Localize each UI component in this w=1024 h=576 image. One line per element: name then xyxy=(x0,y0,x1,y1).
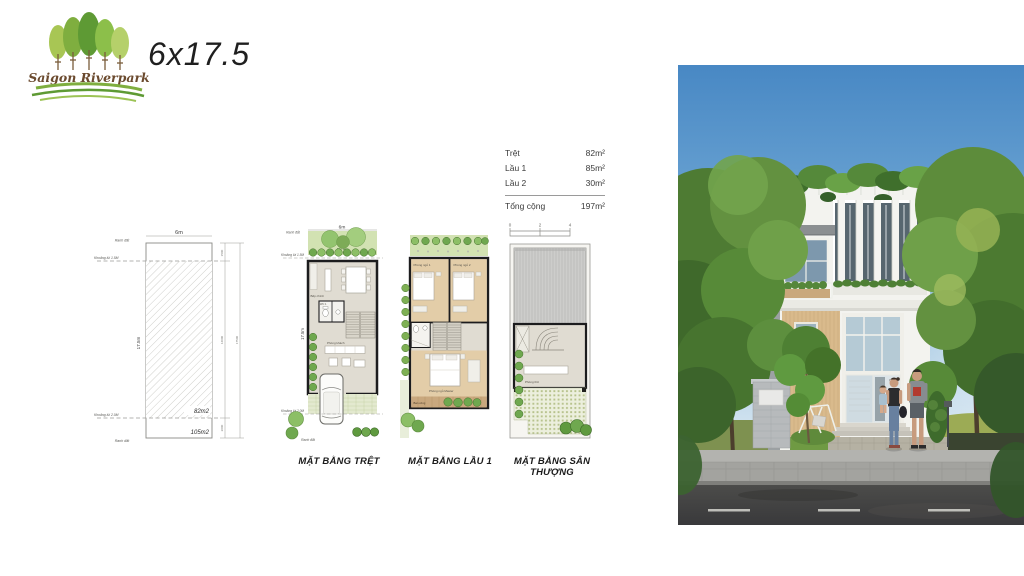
brand-logo: Saigon Riverpark xyxy=(28,10,150,102)
site-width-label: 6m xyxy=(175,230,183,236)
exterior-rendering xyxy=(678,65,1024,525)
site-plan-diagram: 6m 17.5m Ranh đất Khoảng lùi 1.5M Khoảng… xyxy=(92,228,257,453)
rp-roof xyxy=(514,248,586,324)
road xyxy=(678,485,1024,525)
ground-floor-plan: 6m Ranh đất Sân sau Khoảng lùi 1.5M xyxy=(280,222,398,452)
total-label: Tổng cộng xyxy=(505,199,545,214)
gp-width-label: 6m xyxy=(339,225,346,231)
gp-boundary-top: Ranh đất xyxy=(286,231,301,235)
row-value: 82m² xyxy=(586,146,605,161)
roof-terrace-plan: Phòng thờ xyxy=(502,238,598,450)
roof-plan-title: MẶT BẰNG SÂN THƯỢNG xyxy=(494,456,610,478)
ff-roof-garden xyxy=(410,235,489,256)
gp-stairs xyxy=(346,312,375,338)
ff-master-bedroom: Phòng ngủ Master xyxy=(411,351,487,397)
ff-bedroom1-label: Phòng ngủ 1 xyxy=(414,263,431,267)
gp-wc: WC 1 xyxy=(319,301,344,322)
dim-total: 17500 xyxy=(235,335,239,344)
gp-living-label: Phòng khách xyxy=(327,341,345,345)
gate-pillar xyxy=(751,379,792,448)
gp-depth-label: 17.5m xyxy=(300,328,305,340)
dim-top: 1500 xyxy=(220,249,224,256)
site-setback-rear-label: Khoảng lùi 2.0M xyxy=(94,413,119,417)
first-floor-plan-title: MẶT BẰNG LẦU 1 xyxy=(396,456,504,467)
dim-bottom: 2000 xyxy=(220,424,224,431)
scale-tick: 2 xyxy=(539,223,542,228)
page-title: 6x17.5 xyxy=(148,36,250,73)
sidewalk xyxy=(678,450,1024,485)
divider xyxy=(505,195,605,196)
ff-balcony: Ban công xyxy=(411,397,487,408)
dim-mid: 14000 xyxy=(220,335,224,344)
ground-plan-title: MẶT BẰNG TRỆT xyxy=(278,456,400,467)
scale-bar: 0 2 4 xyxy=(505,222,579,240)
scale-tick: 0 xyxy=(509,223,512,228)
gp-backyard: Sân sau xyxy=(308,228,377,257)
row-value: 30m² xyxy=(586,176,605,191)
site-lot-area: 105m2 xyxy=(191,430,210,436)
gp-kitchen-label: Bếp chính xyxy=(311,294,325,298)
table-row: Trệt 82m² xyxy=(505,146,605,161)
site-boundary-top-label: Ranh đất xyxy=(115,239,131,243)
row-label: Lầu 1 xyxy=(505,161,526,176)
first-floor-plan: Phòng ngủ 1 Phòng ngủ 2 xyxy=(400,230,500,448)
site-boundary-bottom-label: Ranh đất xyxy=(115,439,131,443)
logo-swoosh xyxy=(32,84,144,101)
ff-wc xyxy=(411,323,430,348)
logo-trees-icon xyxy=(49,12,129,70)
row-value: 85m² xyxy=(586,161,605,176)
child-figure xyxy=(879,386,887,413)
row-label: Lầu 2 xyxy=(505,176,526,191)
ff-bedroom2-label: Phòng ngủ 2 xyxy=(454,263,471,267)
gp-boundary-bottom: Ranh đất xyxy=(301,438,316,442)
total-value: 197m² xyxy=(581,199,605,214)
gp-setback-front: Khoảng lùi 1.5M xyxy=(281,253,304,257)
table-total-row: Tổng cộng 197m² xyxy=(505,199,605,214)
site-depth-label: 17.5m xyxy=(136,336,141,349)
ff-stairs xyxy=(433,323,461,351)
row-label: Trệt xyxy=(505,146,520,161)
rp-worship-room: Phòng thờ xyxy=(514,324,586,388)
table-row: Lầu 1 85m² xyxy=(505,161,605,176)
site-setback-front-label: Khoảng lùi 1.5M xyxy=(94,256,119,260)
ff-master-label: Phòng ngủ Master xyxy=(429,389,454,393)
gp-car xyxy=(320,374,343,424)
rp-worship-label: Phòng thờ xyxy=(525,380,539,384)
ff-balcony-label: Ban công xyxy=(414,401,426,405)
brochure-page: Saigon Riverpark 6x17.5 6m 17.5m Ranh đấ… xyxy=(0,0,1024,576)
scale-tick: 4 xyxy=(569,223,572,228)
gp-wc-label: WC 1 xyxy=(320,302,327,306)
site-built-area: 82m2 xyxy=(194,409,210,415)
table-row: Lầu 2 30m² xyxy=(505,176,605,191)
hedge xyxy=(926,391,948,443)
area-summary-table: Trệt 82m² Lầu 1 85m² Lầu 2 30m² Tổng cộn… xyxy=(505,146,605,240)
